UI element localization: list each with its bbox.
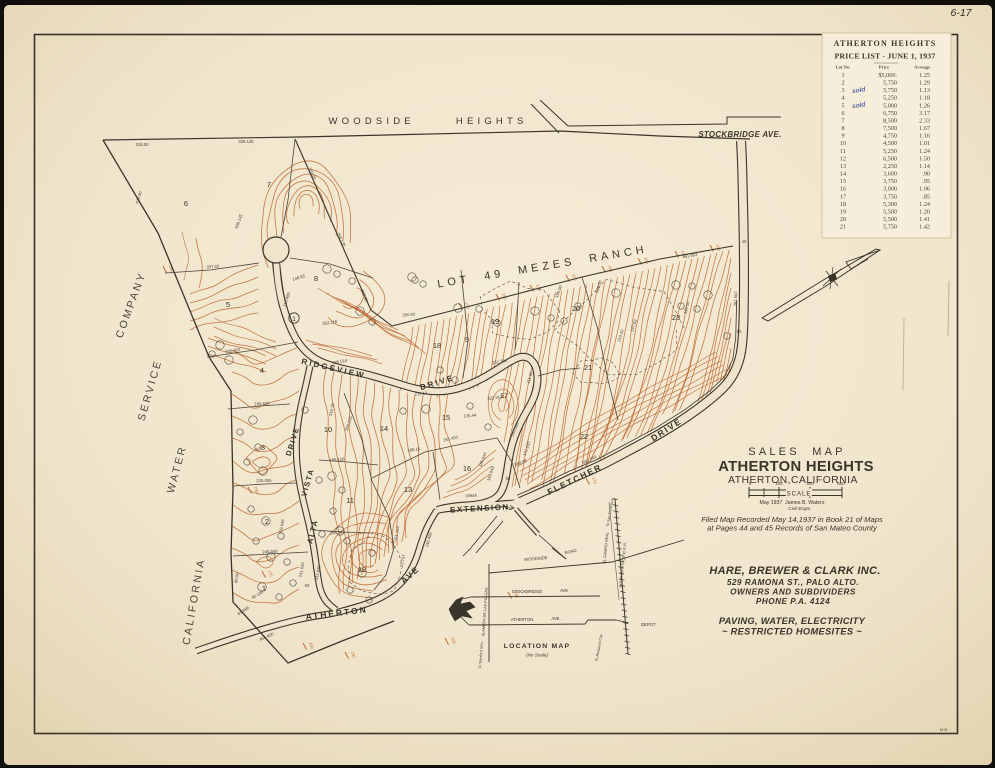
- svg-text:10: 10: [840, 140, 846, 147]
- svg-text:15: 15: [442, 413, 450, 422]
- svg-text:5,750: 5,750: [883, 87, 897, 94]
- svg-text:(No Scale): (No Scale): [526, 653, 548, 658]
- svg-text:50: 50: [506, 476, 511, 481]
- svg-text:1.06: 1.06: [919, 186, 930, 193]
- svg-text:4,500: 4,500: [883, 140, 897, 147]
- svg-text:.85: .85: [922, 193, 930, 200]
- svg-text:HARE, BREWER & CLARK INC.: HARE, BREWER & CLARK INC.: [709, 565, 880, 577]
- svg-text:PRICE LIST - JUNE 1, 1937: PRICE LIST - JUNE 1, 1937: [834, 52, 935, 61]
- svg-text:19644: 19644: [465, 493, 478, 499]
- svg-text:7,500: 7,500: [883, 125, 897, 132]
- svg-text:11: 11: [346, 496, 354, 505]
- svg-text:18: 18: [840, 201, 846, 208]
- svg-text:1.67: 1.67: [919, 125, 930, 132]
- svg-text:225.055: 225.055: [256, 478, 272, 484]
- svg-text:300: 300: [806, 481, 814, 486]
- svg-text:50: 50: [305, 583, 310, 588]
- svg-text:5,250: 5,250: [883, 95, 897, 102]
- svg-text:1.24: 1.24: [919, 201, 930, 208]
- svg-text:at Pages 44 and 45 Records of: at Pages 44 and 45 Records of San Mateo …: [707, 524, 878, 533]
- svg-text:.90: .90: [922, 171, 930, 178]
- svg-text:10: 10: [324, 425, 332, 434]
- svg-text:.95: .95: [922, 178, 930, 185]
- svg-text:16: 16: [463, 464, 471, 473]
- svg-text:5: 5: [841, 102, 844, 109]
- svg-text:5,250: 5,250: [883, 148, 897, 155]
- svg-text:11: 11: [840, 148, 846, 155]
- svg-text:1.01: 1.01: [919, 140, 930, 147]
- svg-text:5,300: 5,300: [883, 201, 897, 208]
- svg-text:OWNERS AND SUBDIVIDERS: OWNERS AND SUBDIVIDERS: [730, 588, 856, 597]
- svg-text:6,750: 6,750: [883, 110, 897, 117]
- svg-text:DEPOT: DEPOT: [641, 622, 656, 627]
- svg-text:20: 20: [572, 304, 580, 313]
- svg-text:5: 5: [226, 300, 230, 309]
- svg-text:WOODSIDE HEIGHTS: WOODSIDE HEIGHTS: [328, 116, 527, 127]
- svg-text:13: 13: [404, 485, 412, 494]
- svg-text:PAVING, WATER, ELECTRICITY: PAVING, WATER, ELECTRICITY: [719, 616, 866, 626]
- svg-text:100: 100: [775, 481, 783, 486]
- svg-text:STOCKBRIDGE AVE.: STOCKBRIDGE AVE.: [698, 130, 781, 139]
- svg-text:PHONE P.A. 4124: PHONE P.A. 4124: [756, 597, 830, 606]
- svg-text:529 RAMONA ST., PALO ALTO.: 529 RAMONA ST., PALO ALTO.: [727, 578, 859, 587]
- svg-text:Lot No.: Lot No.: [836, 65, 851, 70]
- svg-text:17: 17: [840, 193, 846, 200]
- svg-text:337.02: 337.02: [206, 264, 220, 270]
- svg-text:6,500: 6,500: [883, 155, 897, 162]
- svg-text:13: 13: [840, 163, 846, 170]
- svg-text:7: 7: [267, 180, 271, 189]
- svg-text:1.41: 1.41: [919, 216, 930, 223]
- svg-text:250.00: 250.00: [402, 312, 416, 318]
- svg-text:1.14: 1.14: [919, 163, 930, 170]
- svg-text:1.16: 1.16: [919, 133, 930, 140]
- svg-text:8: 8: [841, 125, 844, 132]
- svg-text:23: 23: [672, 313, 680, 322]
- svg-text:40: 40: [742, 239, 747, 244]
- svg-text:ATHERTON HEIGHTS: ATHERTON HEIGHTS: [718, 459, 874, 475]
- svg-text:4: 4: [841, 95, 844, 102]
- svg-text:AVE: AVE: [560, 588, 568, 593]
- svg-text:3,600: 3,600: [883, 171, 897, 178]
- svg-text:1.26: 1.26: [919, 102, 930, 109]
- svg-text:2.33: 2.33: [919, 118, 930, 125]
- svg-text:14: 14: [380, 424, 388, 433]
- svg-text:5,500: 5,500: [883, 208, 897, 215]
- svg-text:3: 3: [841, 87, 844, 94]
- svg-text:1.25: 1.25: [919, 72, 930, 79]
- svg-text:Civil Engrs.: Civil Engrs.: [788, 506, 811, 511]
- svg-text:15: 15: [840, 178, 846, 185]
- svg-text:1.20: 1.20: [919, 208, 930, 215]
- svg-text:6-17: 6-17: [950, 7, 972, 19]
- svg-text:9: 9: [841, 133, 844, 140]
- svg-text:1: 1: [292, 316, 296, 323]
- svg-text:4,750: 4,750: [883, 133, 897, 140]
- svg-text:Price: Price: [879, 65, 889, 70]
- svg-text:6: 6: [184, 199, 188, 208]
- svg-text:SALES MAP: SALES MAP: [748, 446, 845, 458]
- svg-text:5,750: 5,750: [883, 80, 897, 87]
- svg-text:2,250: 2,250: [883, 163, 897, 170]
- svg-text:14: 14: [840, 171, 846, 178]
- svg-text:3,000: 3,000: [883, 186, 897, 193]
- svg-text:ATHERTON HEIGHTS: ATHERTON HEIGHTS: [834, 39, 937, 48]
- svg-text:3.17: 3.17: [919, 110, 930, 117]
- svg-text:SCALE: SCALE: [787, 492, 812, 498]
- svg-text:12: 12: [840, 155, 846, 162]
- svg-text:5,500: 5,500: [883, 216, 897, 223]
- svg-text:21: 21: [840, 224, 846, 231]
- svg-text:1.42: 1.42: [919, 224, 930, 231]
- svg-text:245.506: 245.506: [262, 549, 278, 555]
- svg-text:12: 12: [358, 565, 366, 574]
- svg-text:M.B.: M.B.: [940, 727, 948, 732]
- svg-text:3,750: 3,750: [883, 178, 897, 185]
- svg-text:1.18: 1.18: [919, 95, 930, 102]
- svg-text:3: 3: [261, 443, 265, 452]
- svg-text:1.13: 1.13: [919, 87, 930, 94]
- svg-text:19: 19: [491, 317, 499, 326]
- svg-text:1: 1: [841, 72, 844, 79]
- svg-text:5,000: 5,000: [883, 102, 897, 109]
- svg-text:AVE.: AVE.: [551, 616, 560, 621]
- svg-text:318.00: 318.00: [136, 142, 149, 147]
- svg-text:LOCATION MAP: LOCATION MAP: [504, 643, 570, 650]
- svg-text:3,750: 3,750: [883, 193, 897, 200]
- svg-text:166.628: 166.628: [254, 401, 270, 407]
- svg-text:7: 7: [841, 118, 844, 125]
- svg-text:9: 9: [465, 335, 469, 344]
- svg-text:19: 19: [840, 208, 846, 215]
- svg-text:ATHERTON: ATHERTON: [511, 617, 534, 622]
- svg-text:21: 21: [584, 363, 592, 372]
- svg-text:50: 50: [737, 329, 742, 334]
- svg-text:~ RESTRICTED HOMESITES ~: ~ RESTRICTED HOMESITES ~: [722, 627, 862, 637]
- svg-text:2: 2: [265, 517, 269, 526]
- svg-text:8: 8: [314, 274, 318, 283]
- svg-text:6: 6: [841, 110, 844, 117]
- svg-text:20: 20: [840, 216, 846, 223]
- svg-text:STOCKBRIDGE: STOCKBRIDGE: [512, 589, 543, 594]
- svg-text:1.50: 1.50: [919, 155, 930, 162]
- svg-text:4: 4: [260, 366, 264, 375]
- svg-text:18: 18: [433, 341, 441, 350]
- svg-text:500: 500: [837, 481, 845, 486]
- svg-text:8,500: 8,500: [883, 118, 897, 125]
- svg-text:2: 2: [841, 80, 844, 87]
- svg-text:336.135: 336.135: [238, 139, 254, 144]
- svg-text:$5,000.: $5,000.: [878, 72, 897, 79]
- svg-text:1.29: 1.29: [919, 80, 930, 87]
- svg-text:22: 22: [580, 432, 588, 441]
- svg-text:5,750: 5,750: [883, 224, 897, 231]
- svg-text:16: 16: [840, 186, 846, 193]
- svg-text:Acreage: Acreage: [914, 65, 930, 70]
- svg-text:1.24: 1.24: [919, 148, 930, 155]
